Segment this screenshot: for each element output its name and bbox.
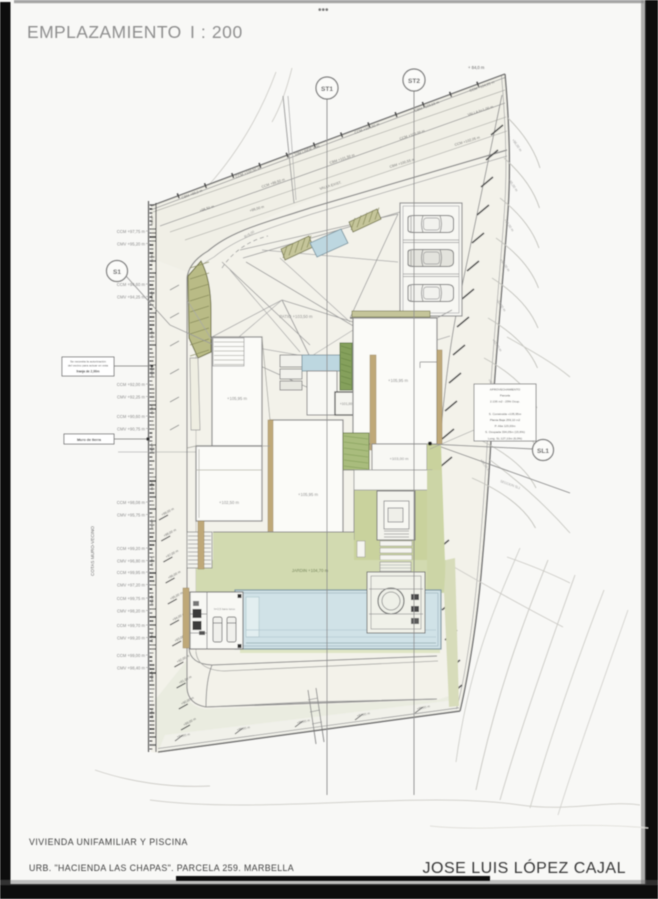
svg-text:+91,50: +91,50 — [150, 443, 154, 453]
svg-text:+97,50: +97,50 — [150, 215, 154, 225]
svg-text:+93,50: +93,50 — [150, 367, 154, 377]
svg-text:h=2,5 bano turco: h=2,5 bano turco — [214, 607, 236, 611]
svg-text:S1: S1 — [113, 269, 121, 276]
svg-text:CCM +99,75 m: CCM +99,75 m — [117, 596, 146, 601]
svg-text:Planta Baja 259,10 m2: Planta Baja 259,10 m2 — [490, 418, 521, 422]
svg-text:URB. "HACIENDA LAS CHAPAS". PA: URB. "HACIENDA LAS CHAPAS". PARCELA 259.… — [29, 863, 294, 873]
svg-text:I : 200: I : 200 — [190, 22, 243, 42]
svg-text:P. Alta 123,00m: P. Alta 123,00m — [495, 424, 516, 428]
svg-text:S. Ocupada 334,05m (15,6%): S. Ocupada 334,05m (15,6%) — [485, 430, 525, 434]
svg-text:+102,50 m: +102,50 m — [219, 500, 239, 505]
svg-text:CCM +92,00 m: CCM +92,00 m — [117, 382, 146, 387]
svg-text:+97,50: +97,50 — [150, 595, 154, 605]
svg-text:+101,00: +101,00 — [340, 402, 352, 406]
svg-text:CCM +99,70 m: CCM +99,70 m — [117, 623, 146, 628]
svg-text:CMV +90,75 m: CMV +90,75 m — [117, 427, 146, 432]
svg-text:+94,50: +94,50 — [150, 709, 154, 719]
svg-text:COTAS MURO-VECINO: COTAS MURO-VECINO — [90, 526, 95, 576]
svg-text:CCM +99,00 m: CCM +99,00 m — [117, 653, 146, 658]
svg-text:APROVECHAMIENTO: APROVECHAMIENTO — [490, 388, 521, 392]
svg-text:SL1: SL1 — [537, 448, 549, 455]
svg-text:+96,50: +96,50 — [150, 253, 154, 263]
svg-text:franja de 2,00m: franja de 2,00m — [76, 370, 99, 374]
svg-text:CMV +92,25 m: CMV +92,25 m — [117, 395, 146, 400]
svg-text:2.136 m2 - 25% Ocup.: 2.136 m2 - 25% Ocup. — [490, 400, 520, 404]
svg-text:Muro de tierra: Muro de tierra — [77, 438, 102, 442]
svg-text:+105,95 m: +105,95 m — [388, 378, 408, 383]
svg-text:JARDIN +104,70 m: JARDIN +104,70 m — [292, 568, 329, 573]
svg-text:CCM +99,20 m: CCM +99,20 m — [117, 546, 146, 551]
svg-text:+94,50: +94,50 — [150, 329, 154, 339]
svg-text:+ 84,0 m: + 84,0 m — [468, 65, 485, 70]
svg-text:CCM +97,75 m: CCM +97,75 m — [117, 229, 146, 234]
svg-text:+98,50: +98,50 — [150, 557, 154, 567]
svg-text:CMV +95,75 m: CMV +95,75 m — [117, 513, 146, 518]
svg-text:+95,50: +95,50 — [150, 671, 154, 681]
svg-text:+92,50: +92,50 — [150, 405, 154, 415]
svg-text:+95,50: +95,50 — [150, 291, 154, 301]
svg-text:ST1: ST1 — [321, 86, 333, 93]
svg-text:CCM +94,60 m: CCM +94,60 m — [117, 282, 146, 287]
svg-text:+96,50: +96,50 — [150, 633, 154, 643]
svg-text:JOSE LUIS LÓPEZ CAJAL: JOSE LUIS LÓPEZ CAJAL — [423, 858, 626, 877]
svg-text:CMV +98,40 m: CMV +98,40 m — [117, 666, 146, 671]
svg-text:VIVIENDA UNIFAMILIAR Y PISCINA: VIVIENDA UNIFAMILIAR Y PISCINA — [29, 837, 188, 847]
svg-text:+90,50: +90,50 — [150, 481, 154, 491]
svg-text:CMV +95,20 m: CMV +95,20 m — [117, 242, 146, 247]
svg-text:ST2: ST2 — [408, 78, 420, 85]
svg-text:Long. SL 127,10m (6,0%): Long. SL 127,10m (6,0%) — [488, 436, 522, 440]
svg-text:CCM +98,08 m: CCM +98,08 m — [117, 500, 146, 505]
svg-text:EMPLAZAMIENTO: EMPLAZAMIENTO — [27, 22, 182, 42]
svg-text:CMV +99,20 m: CMV +99,20 m — [117, 636, 146, 641]
svg-text:•••: ••• — [318, 5, 329, 16]
svg-text:+99,50: +99,50 — [150, 519, 154, 529]
svg-text:+105,95 m: +105,95 m — [298, 492, 318, 497]
svg-text:S. Construida +105,95m: S. Construida +105,95m — [489, 412, 522, 416]
svg-text:CMV +94,25 m: CMV +94,25 m — [117, 295, 146, 300]
svg-text:+105,95 m: +105,95 m — [227, 396, 247, 401]
svg-text:PATIO +103,50 m: PATIO +103,50 m — [279, 314, 313, 319]
svg-text:CCM +90,60 m: CCM +90,60 m — [117, 414, 146, 419]
svg-text:Parcela: Parcela — [500, 394, 511, 398]
svg-text:CCM +99,95 m: CCM +99,95 m — [117, 570, 146, 575]
svg-text:del vecino para actuar en esta: del vecino para actuar en esta — [68, 364, 109, 368]
svg-text:CMV +96,80 m: CMV +96,80 m — [117, 559, 146, 564]
svg-text:CMV +97,20 m: CMV +97,20 m — [117, 583, 146, 588]
svg-text:CMV +98,20 m: CMV +98,20 m — [117, 609, 146, 614]
svg-text:+103,00 m: +103,00 m — [389, 456, 409, 461]
